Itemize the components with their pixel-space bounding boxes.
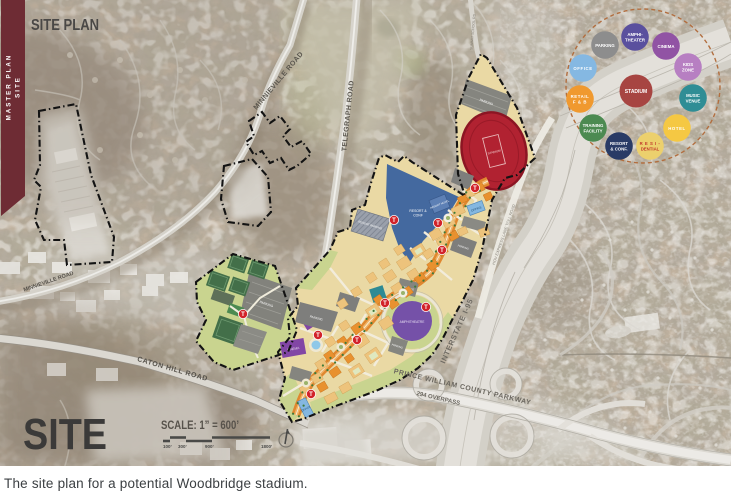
svg-text:TRAINING: TRAINING: [583, 123, 604, 128]
svg-text:VENUE: VENUE: [686, 99, 701, 104]
svg-text:CINEMA: CINEMA: [658, 44, 675, 49]
svg-text:T: T: [383, 301, 387, 307]
svg-text:PARKING: PARKING: [595, 43, 615, 48]
svg-text:100’: 100’: [163, 444, 172, 449]
svg-text:THEATER: THEATER: [625, 38, 646, 43]
svg-text:RESORT: RESORT: [610, 141, 628, 146]
svg-text:STADIUM: STADIUM: [625, 89, 647, 95]
svg-text:AMPHI-: AMPHI-: [627, 32, 643, 37]
svg-text:T: T: [392, 218, 396, 224]
svg-text:SITE: SITE: [15, 76, 22, 98]
svg-text:T: T: [440, 248, 444, 254]
svg-text:SITE PLAN: SITE PLAN: [31, 17, 99, 34]
svg-text:RESORT &: RESORT &: [409, 209, 427, 213]
svg-text:T: T: [241, 312, 245, 318]
svg-text:CONF: CONF: [413, 214, 423, 218]
svg-text:& CONF.: & CONF.: [610, 147, 627, 152]
svg-text:RETAIL: RETAIL: [571, 94, 590, 99]
svg-text:DENTIAL: DENTIAL: [641, 147, 660, 152]
svg-text:MUSIC: MUSIC: [686, 93, 700, 98]
svg-text:SCALE: 1” = 600’: SCALE: 1” = 600’: [161, 420, 239, 432]
svg-text:T: T: [424, 305, 428, 311]
svg-text:SITE: SITE: [23, 410, 107, 459]
svg-text:300’: 300’: [178, 444, 187, 449]
svg-text:T: T: [316, 333, 320, 339]
svg-text:T: T: [436, 221, 440, 227]
svg-text:R E S I -: R E S I -: [640, 141, 661, 146]
svg-text:T: T: [473, 186, 477, 192]
svg-text:MASTER PLAN: MASTER PLAN: [6, 54, 13, 121]
svg-text:AMPHITHEATRE: AMPHITHEATRE: [400, 320, 425, 324]
svg-text:F & B: F & B: [573, 100, 587, 105]
svg-text:FACILITY: FACILITY: [583, 129, 602, 134]
svg-text:1800’: 1800’: [261, 444, 272, 449]
svg-text:HOTEL: HOTEL: [668, 126, 686, 131]
svg-text:900’: 900’: [205, 444, 214, 449]
svg-text:OFFICE: OFFICE: [573, 66, 592, 71]
svg-text:T: T: [355, 338, 359, 344]
svg-text:KIDS: KIDS: [683, 62, 693, 67]
svg-text:T: T: [309, 392, 313, 398]
svg-text:ZONE: ZONE: [682, 68, 694, 73]
